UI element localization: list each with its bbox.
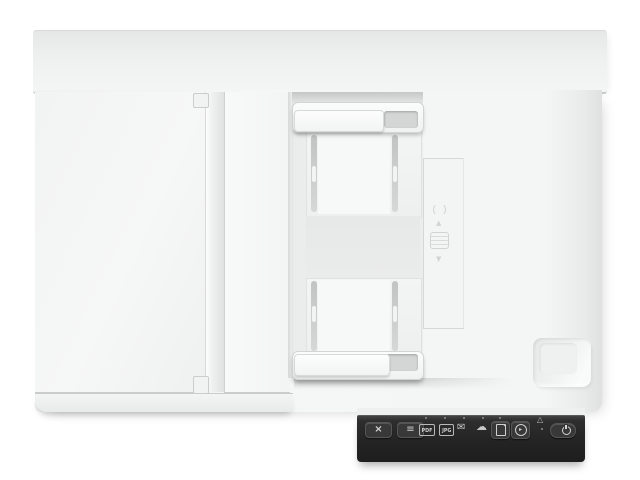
scanner-product-photo: ▲ ▼ × ≡ PDF JPG ✉ ☁ ▸ △: [0, 0, 640, 480]
adf-tray-floor: [306, 216, 420, 278]
cancel-button[interactable]: ×: [365, 422, 392, 438]
jpg-destination-icon: JPG: [439, 424, 454, 436]
lid-hinge-strip: [205, 92, 225, 392]
jpg-led: [444, 417, 446, 419]
power-icon: [562, 426, 571, 435]
email-led: [463, 417, 465, 419]
paper-stack-icon: [430, 232, 449, 249]
cloud-led: [482, 417, 484, 419]
guide-rail-lock: [312, 306, 316, 322]
control-panel: × ≡ PDF JPG ✉ ☁ ▸ △: [357, 415, 585, 462]
paper-guide-slider-bottom[interactable]: [294, 354, 390, 376]
pdf-label: PDF: [422, 427, 433, 432]
flatbed-lid: [35, 92, 205, 393]
arrow-down-icon: ▼: [436, 256, 441, 263]
rotate-arrows-icon: [433, 203, 446, 216]
pdf-led: [425, 417, 427, 419]
paper-path-surface-top: [318, 133, 390, 214]
lid-latch-pad-face: [539, 343, 577, 374]
hinge-tab-bottom: [193, 376, 209, 394]
power-button[interactable]: [550, 423, 576, 438]
lid-middle-section: [224, 92, 290, 393]
paper-guide-slider-top[interactable]: [294, 110, 384, 132]
guide-rail-lock: [393, 306, 397, 322]
paper-path-surface-bottom: [318, 280, 390, 352]
cancel-x-icon: ×: [374, 425, 382, 435]
adf-inset-shadow: [288, 92, 294, 378]
scan-to-file-button[interactable]: [491, 421, 510, 439]
warning-triangle-icon: △: [537, 416, 543, 424]
menu-lines-icon: ≡: [406, 425, 414, 435]
cloud-icon: ☁: [476, 421, 487, 432]
document-led: [499, 417, 501, 419]
arrow-up-icon: ▲: [436, 220, 441, 227]
paper-guide-slot-top: [384, 111, 418, 128]
scan-circle-icon: ▸: [515, 424, 527, 436]
hinge-tab-top: [193, 93, 209, 108]
email-envelope-icon: ✉: [457, 423, 465, 433]
jpg-label: JPG: [442, 427, 451, 432]
lid-front-edge: [35, 393, 293, 412]
scanner-rear-band: [33, 30, 607, 94]
guide-rail-lock: [312, 166, 316, 182]
paper-guide-slot-bottom: [386, 354, 418, 371]
document-icon: [496, 424, 506, 436]
scan-button[interactable]: ▸: [511, 421, 530, 439]
pdf-destination-icon: PDF: [419, 424, 435, 436]
warning-led: [541, 428, 543, 430]
guide-rail-lock: [393, 166, 397, 182]
